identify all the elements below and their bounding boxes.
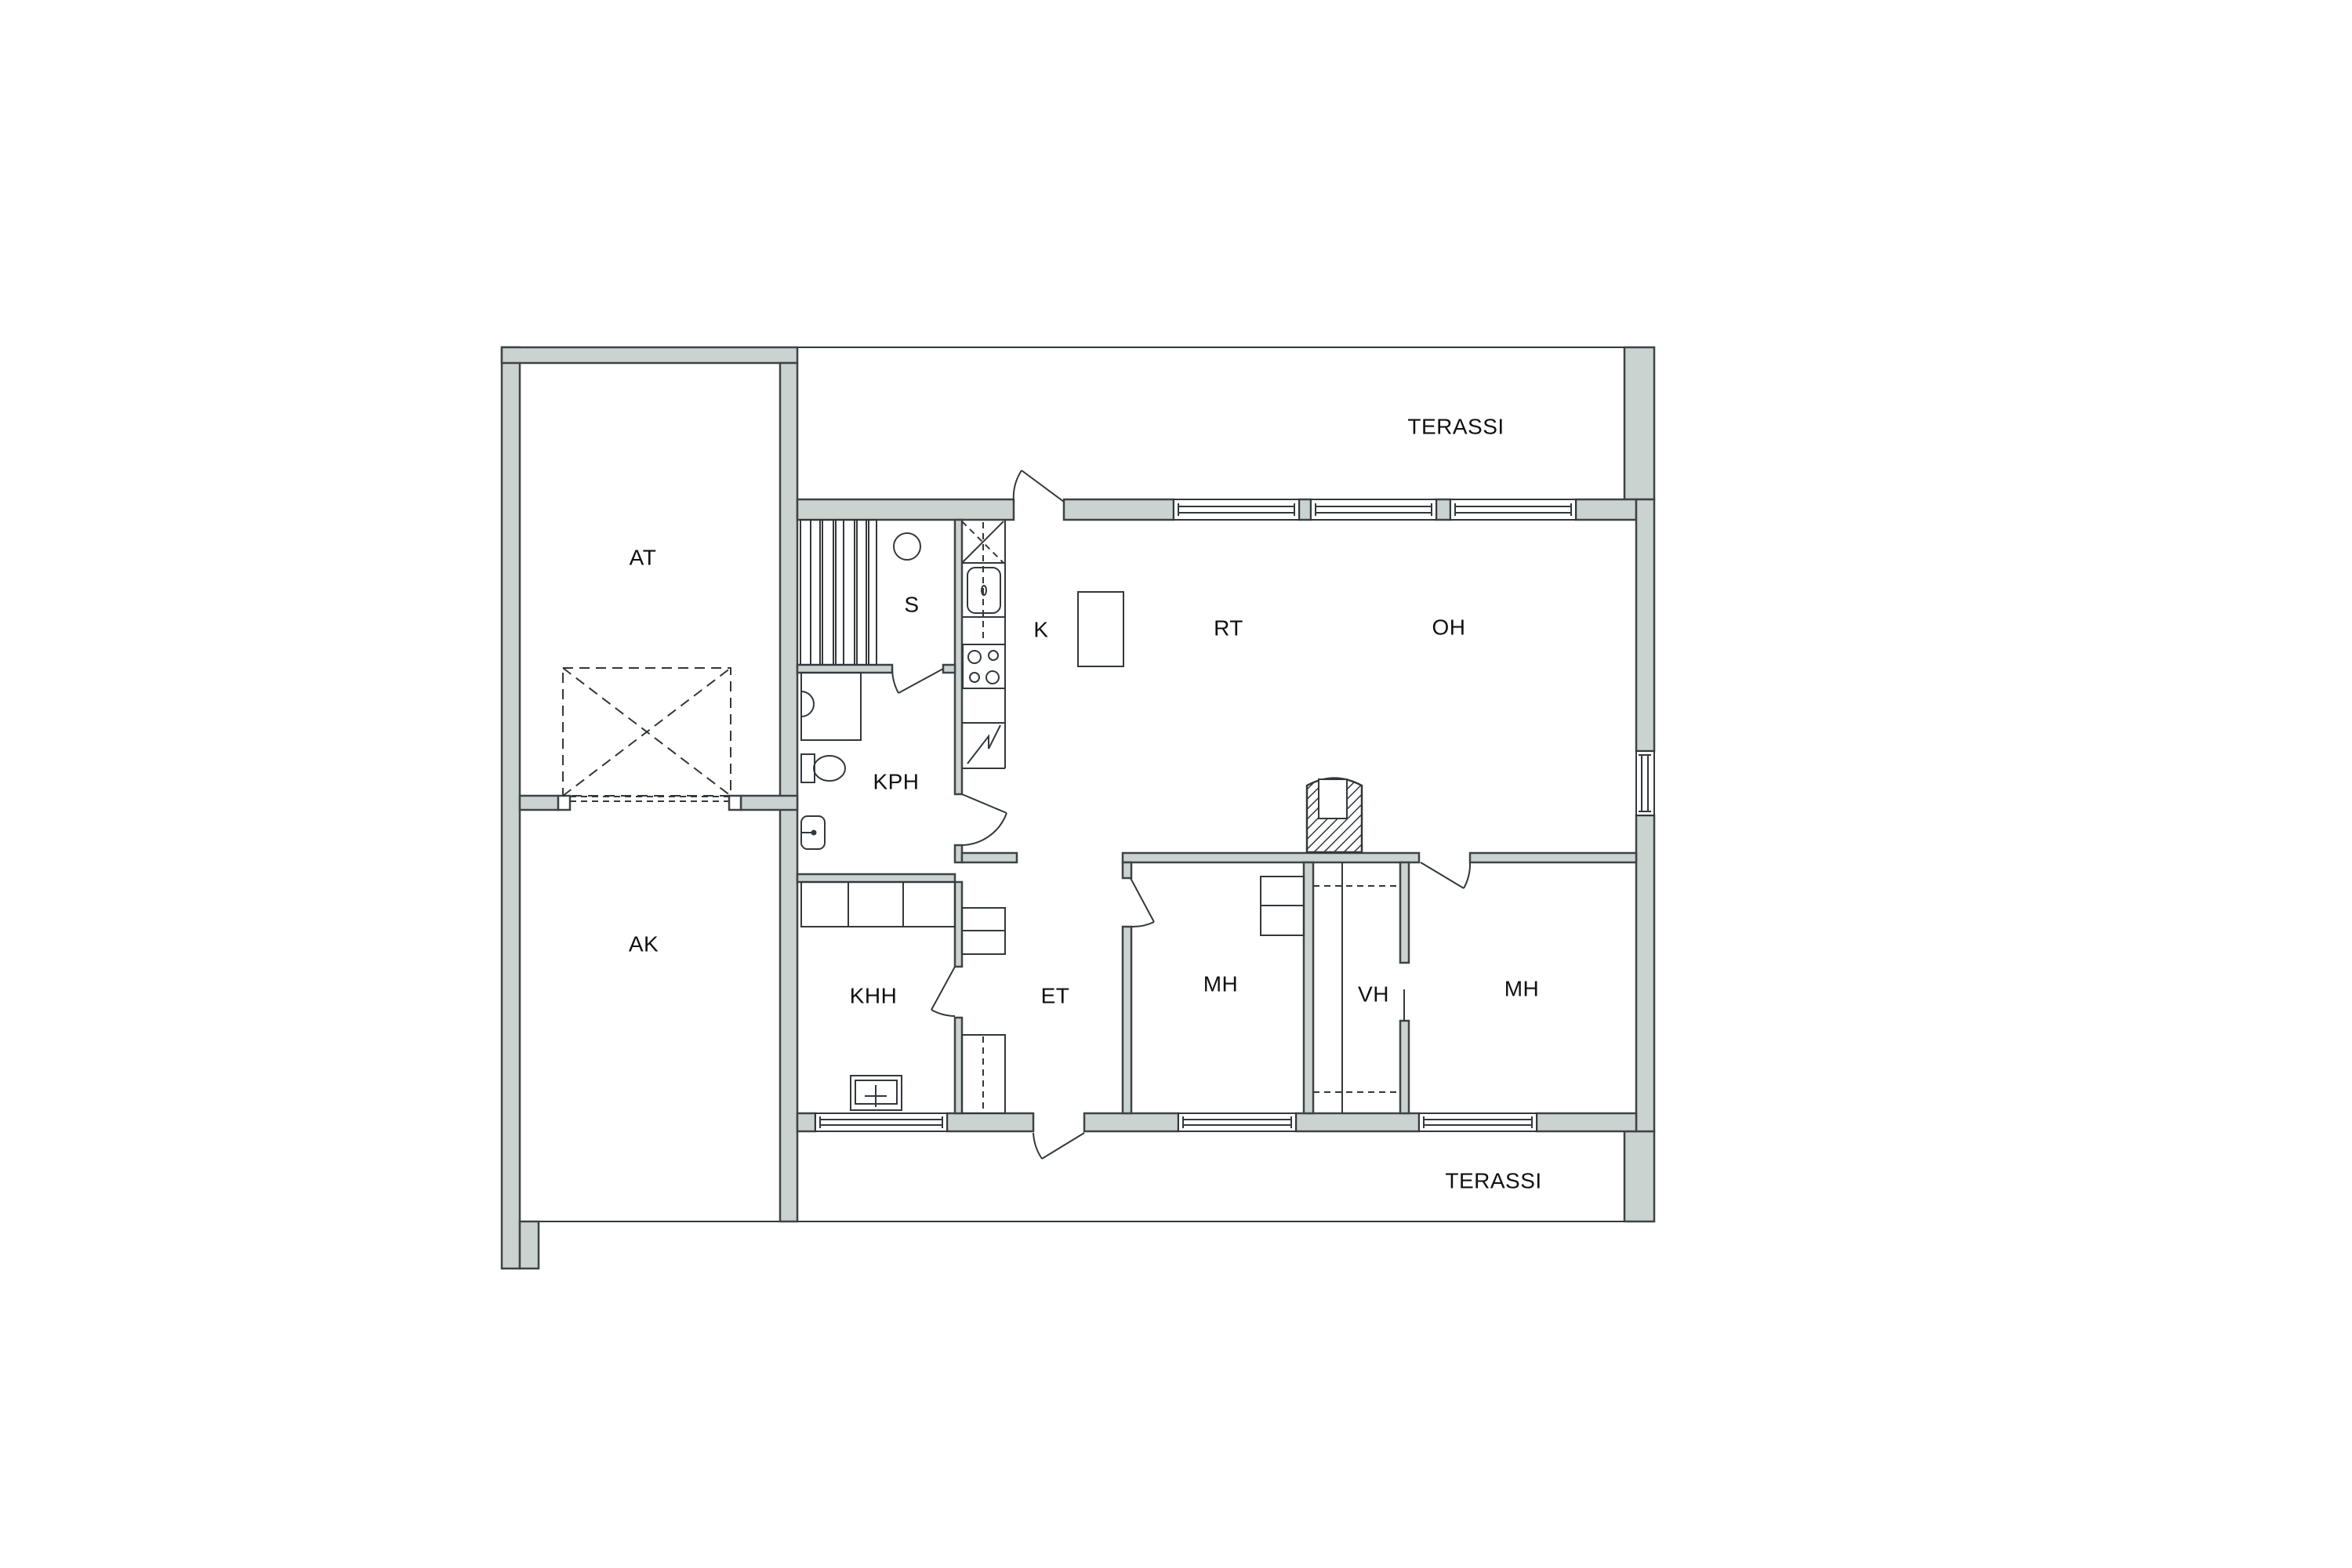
room-label-et: ET — [1041, 984, 1070, 1008]
room-label-kph: KPH — [873, 770, 919, 794]
door — [962, 794, 1007, 845]
garage-door-post — [729, 796, 741, 810]
room-label-at: AT — [630, 546, 657, 570]
room-label-kitchen: K — [1033, 618, 1048, 642]
kitchen-counter — [962, 520, 1005, 768]
sink-icon — [801, 816, 825, 849]
room-label-sauna: S — [904, 593, 919, 617]
door — [1421, 862, 1470, 888]
window — [1450, 499, 1576, 520]
garage-door — [570, 797, 729, 801]
room-label-khh: KHH — [850, 984, 898, 1008]
floor-plan-drawing: AT AK S KPH KHH K RT OH ET MH VH MH TERA… — [0, 0, 2352, 1568]
window — [1311, 499, 1436, 520]
kitchen-island — [1078, 592, 1123, 666]
sauna-stove-icon — [894, 533, 920, 560]
window — [1419, 1113, 1537, 1131]
door — [1131, 878, 1154, 927]
sauna-benches — [800, 520, 877, 665]
interior-walls — [797, 520, 1636, 1113]
terrace-bottom-end-wall — [1624, 1131, 1654, 1221]
window — [1174, 499, 1299, 520]
washing-machine-icon — [851, 1076, 902, 1110]
toilet-icon — [801, 754, 845, 782]
room-label-oh: OH — [1432, 615, 1466, 640]
room-label-mh-left: MH — [1203, 972, 1239, 996]
shower-icon — [801, 673, 861, 740]
stove-icon — [963, 644, 1005, 688]
garage-door-post — [558, 796, 570, 810]
fireplace-icon — [1307, 779, 1362, 853]
room-label-rt: RT — [1214, 616, 1243, 641]
dishwasher-icon — [967, 725, 1000, 764]
door — [1014, 470, 1064, 502]
hall-cabinet — [962, 908, 1005, 954]
floor-plan-page: AT AK S KPH KHH K RT OH ET MH VH MH TERA… — [0, 0, 2352, 1568]
room-label-terrace-bottom: TERASSI — [1445, 1169, 1541, 1193]
bedroom-cabinet — [1261, 877, 1304, 935]
window — [1178, 1113, 1296, 1131]
utility-cabinets — [801, 882, 955, 927]
room-label-ak: AK — [629, 932, 659, 956]
hall-closet — [962, 1035, 1005, 1113]
door — [931, 967, 955, 1016]
room-label-vh: VH — [1358, 982, 1389, 1007]
door — [1033, 1133, 1084, 1159]
room-label-terrace-top: TERASSI — [1407, 415, 1504, 439]
terrace-top-end-wall — [1624, 347, 1654, 499]
terrace-outlines — [520, 347, 1654, 1221]
room-label-mh-right: MH — [1504, 977, 1540, 1001]
car-space-marking — [563, 668, 731, 796]
window — [1636, 751, 1654, 815]
windows — [815, 499, 1654, 1131]
window — [815, 1113, 947, 1131]
door — [892, 669, 943, 693]
